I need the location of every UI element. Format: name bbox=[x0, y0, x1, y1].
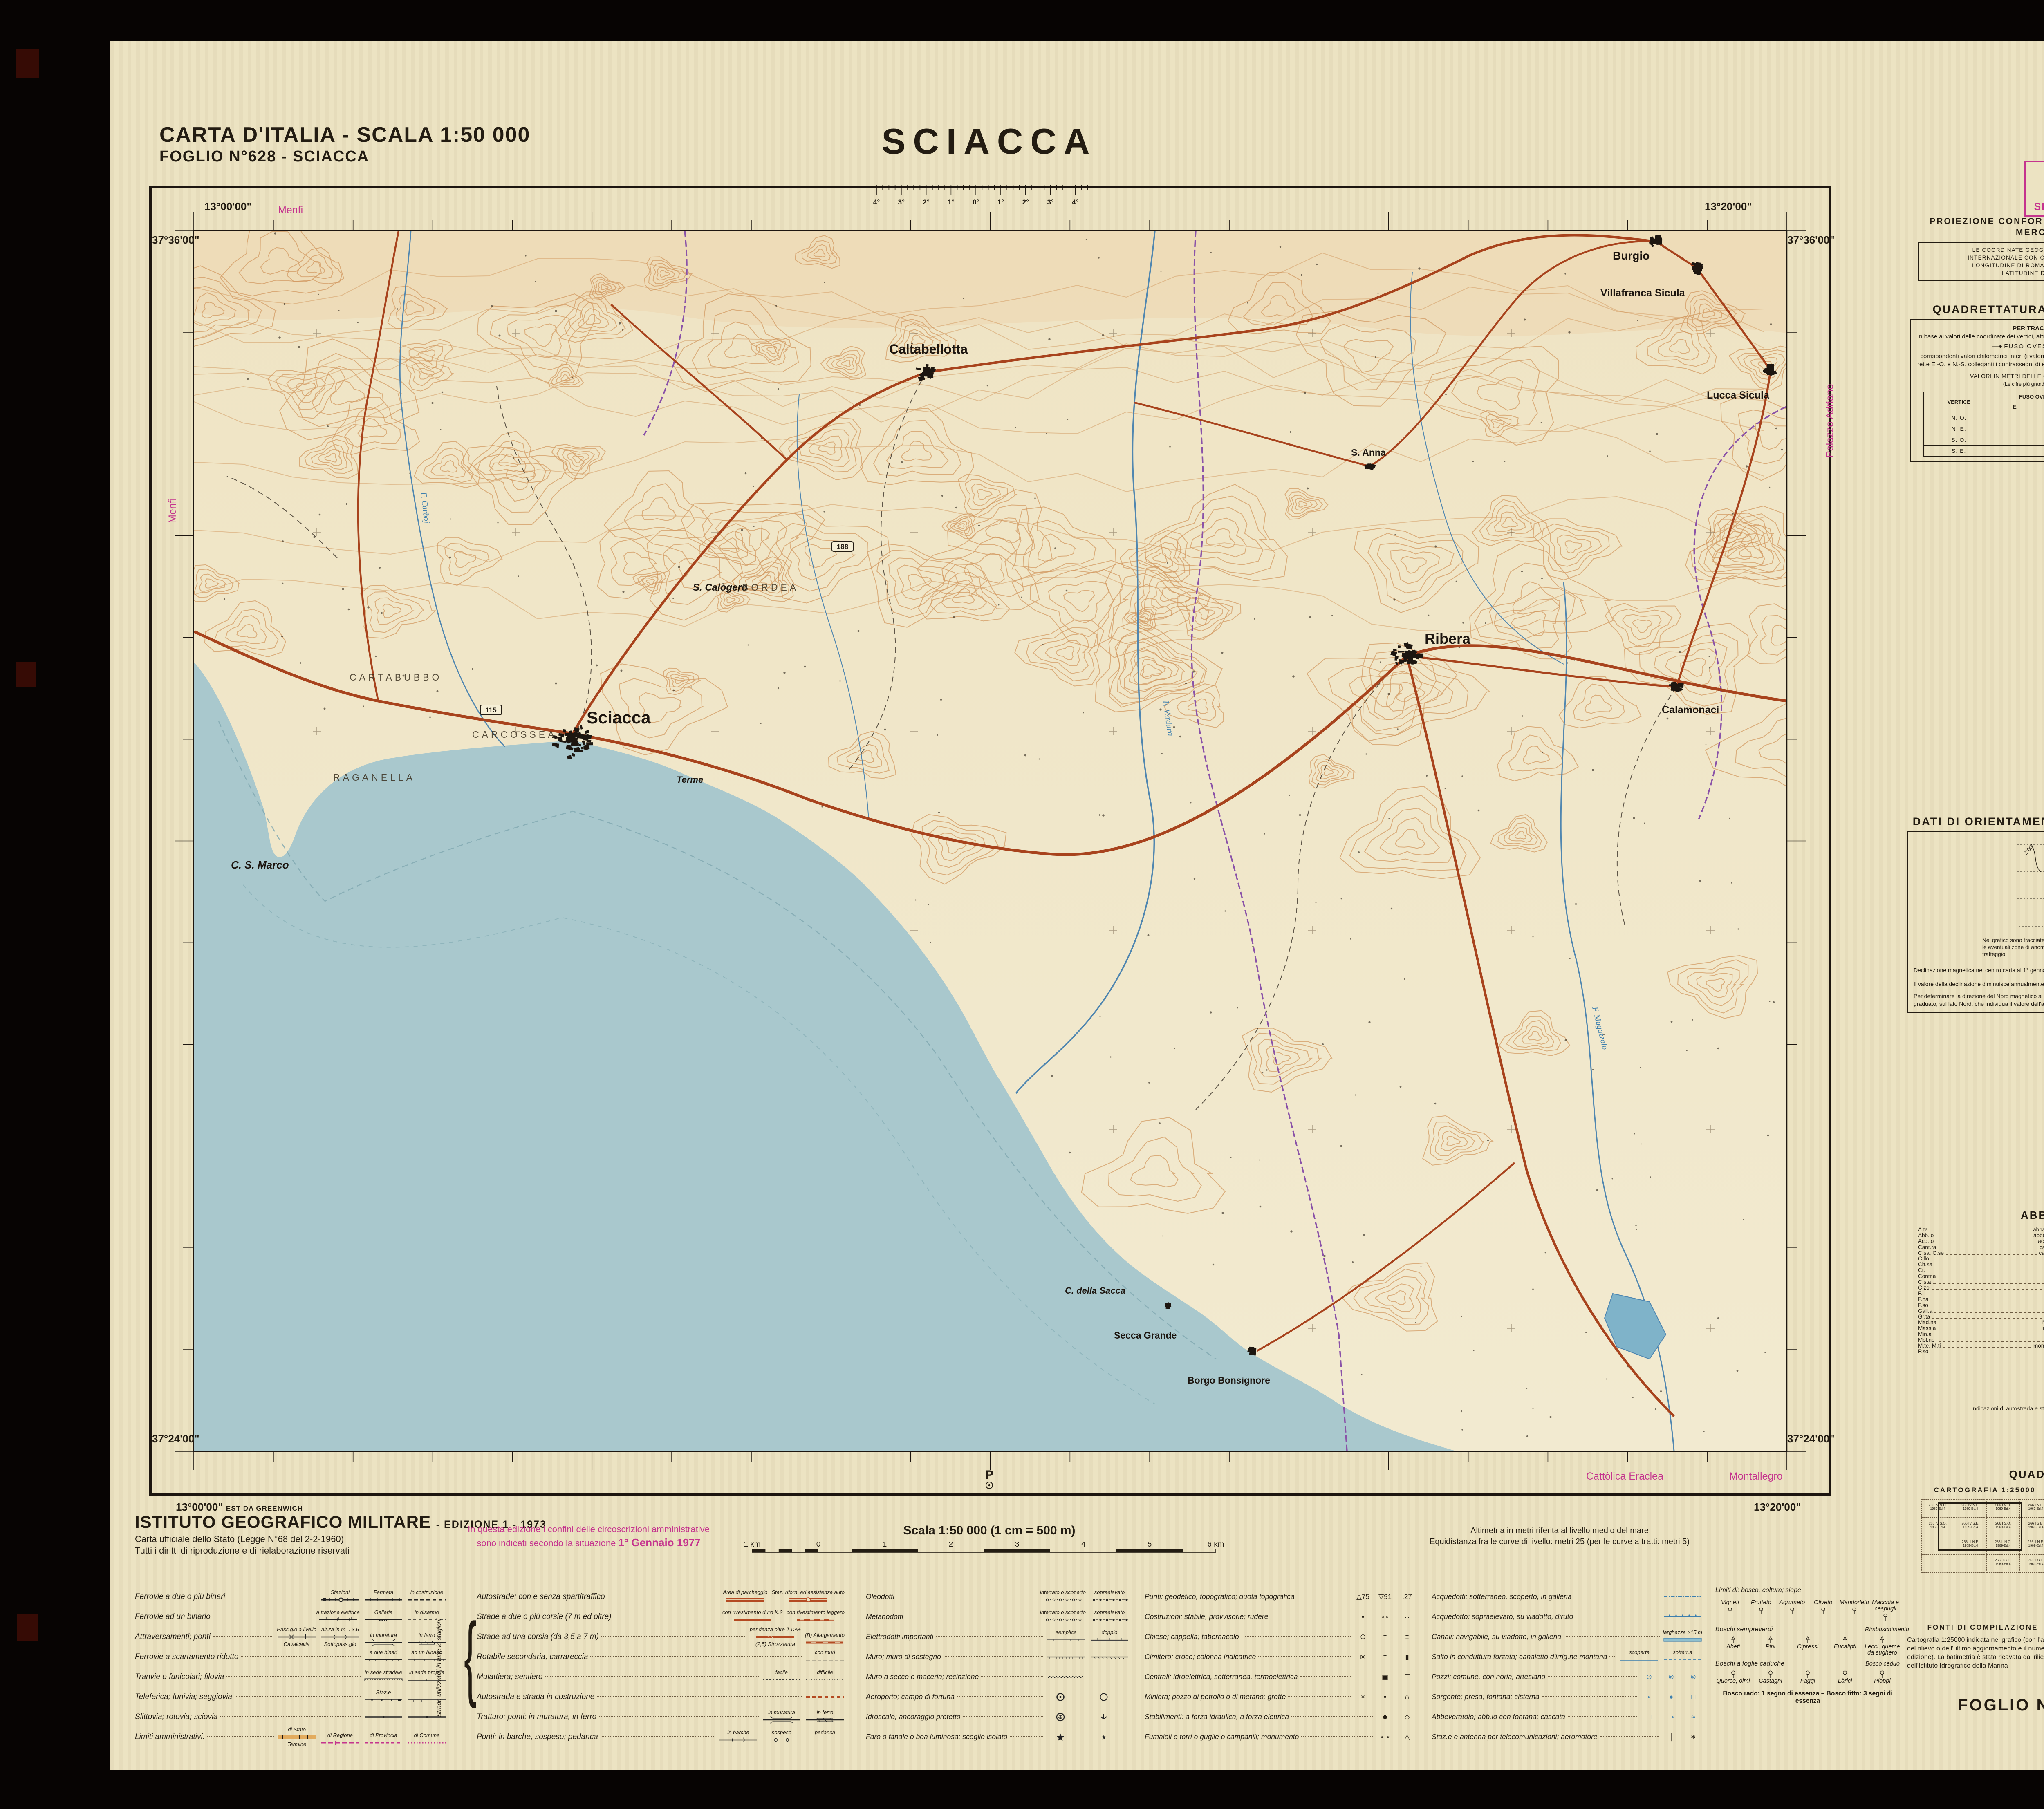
adjoining-sheet-left: Menfi bbox=[167, 498, 179, 523]
legend-symbol-icon bbox=[762, 1735, 801, 1744]
legend-symbol-icon bbox=[1663, 1612, 1702, 1621]
corner-nw-lat: 37°36'00" bbox=[152, 234, 199, 246]
quadrettatura-p3: VALORI IN METRI DELLE COORDINATE DEI VER… bbox=[1917, 372, 2044, 380]
veg-species: Cipressi bbox=[1790, 1635, 1825, 1656]
legend-symbol-icon bbox=[1047, 1672, 1086, 1681]
c25-cell: 266 I S.E.1969-Ed.4 bbox=[2019, 1518, 2044, 1536]
legend-symbol-slot: △ bbox=[1398, 1733, 1416, 1741]
legend-label: Ponti: in barche, sospeso; pedanca bbox=[477, 1733, 598, 1742]
legend-label: Sorgente; presa; fontana; cisterna bbox=[1432, 1693, 1540, 1701]
c25-title: CARTOGRAFIA 1:25000 bbox=[1905, 1486, 2044, 1494]
legend-symbol-slot: ⊠ bbox=[1354, 1653, 1372, 1661]
legend-symbol-icon bbox=[1663, 1635, 1702, 1644]
abbreviation-row: A.taabbandonata bbox=[1918, 1227, 2044, 1233]
col-n: N. bbox=[2036, 402, 2044, 412]
legend-row: Ponti: in barche, sospeso; pedanca in ba… bbox=[477, 1727, 845, 1747]
legend-symbol-icon bbox=[719, 1735, 758, 1744]
coordinates-note-line: LONGITUDINE DI ROMA (M. MARIO), DA GREEN… bbox=[1921, 262, 2044, 269]
tree-icon bbox=[1851, 1607, 1858, 1615]
legend-symbol-icon bbox=[1090, 1713, 1129, 1722]
legend-symbol-slot bbox=[1090, 1672, 1129, 1681]
legend-symbol-icon bbox=[805, 1655, 845, 1664]
legend-row: Ferrovie a scartamento ridotto a due bin… bbox=[135, 1647, 446, 1667]
legend-symbol-slot: scoperta bbox=[1620, 1650, 1659, 1664]
abbreviation-row: Ch.sachiesa bbox=[1918, 1262, 2044, 1267]
legend-symbol-icon bbox=[805, 1675, 845, 1684]
town-label: Caltabellotta bbox=[889, 342, 968, 356]
legend-row: Abbeveratoio; abb.io con fontana; cascat… bbox=[1432, 1707, 1702, 1727]
legend-label: Fumaioli o torri o guglie o campanili; m… bbox=[1145, 1733, 1299, 1741]
legend-label: Chiese; cappella; tabernacolo bbox=[1145, 1632, 1239, 1641]
legend-symbol-icon bbox=[364, 1675, 403, 1684]
legend-row: Idroscalo; ancoraggio protetto bbox=[866, 1707, 1129, 1727]
legend-symbol-slot: pedanca bbox=[805, 1730, 845, 1744]
legend-row: Oleodotti interrato o scoperto so bbox=[866, 1587, 1129, 1607]
diminution-line: Il valore della declinazione diminuisce … bbox=[1914, 977, 2044, 988]
legend-symbol-icon bbox=[1047, 1635, 1086, 1644]
legend-label: Rotabile secondaria, carrareccia bbox=[477, 1652, 588, 1661]
legend-symbol-slot bbox=[1047, 1672, 1086, 1681]
legend-symbol-slot: sotterr.a bbox=[1663, 1650, 1702, 1664]
legend-label: Attraversamenti; ponti bbox=[135, 1632, 211, 1641]
legend-label: Costruzioni: stabile, provvisorie; ruder… bbox=[1145, 1612, 1269, 1621]
legend-symbol-icon bbox=[364, 1638, 403, 1647]
legend-symbol-slot: □ bbox=[1684, 1693, 1702, 1701]
cape-label: C. della Sacca bbox=[1065, 1285, 1125, 1296]
c25-sheet-outline bbox=[1938, 1502, 2022, 1551]
veg-crop: Agrumeto bbox=[1777, 1600, 1807, 1621]
veg-species: Querce, olmi bbox=[1715, 1669, 1751, 1684]
legend-row: Autostrade: con e senza spartitraffico A… bbox=[477, 1587, 845, 1607]
legend-symbol-icon bbox=[364, 1713, 403, 1722]
legend-symbol-icon bbox=[364, 1615, 403, 1624]
projection-note: PROIEZIONE CONFORME UNIVERSALE TRASVERSA… bbox=[1913, 216, 2044, 238]
legend-symbol-icon bbox=[364, 1695, 403, 1704]
abbreviation-row: Mad.naMadonna bbox=[1918, 1320, 2044, 1325]
legend-symbol-slot: doppio bbox=[1090, 1630, 1129, 1644]
series-title: CARTA D'ITALIA - SCALA 1:50 000 bbox=[159, 123, 530, 147]
corner-ne-lat: 37°36'00" bbox=[1787, 234, 1835, 246]
legend-col-points: Punti: geodetico, topografico; quota top… bbox=[1145, 1587, 1416, 1747]
legend-row: Limiti amministrativi: di Stato Termine bbox=[135, 1727, 446, 1747]
legend-symbol-slot: ∘ ∘ bbox=[1376, 1733, 1394, 1741]
bosco-note: Bosco rado: 1 segno di essenza – Bosco f… bbox=[1715, 1690, 1900, 1705]
legend-symbol-slot: facile bbox=[762, 1670, 801, 1684]
c25-cell: 266 II N.E.1969-Ed.4 bbox=[2019, 1536, 2044, 1554]
legend-symbol-slot: × bbox=[1354, 1693, 1372, 1701]
legend-row: Miniera; pozzo di petrolio o di metano; … bbox=[1145, 1687, 1416, 1707]
legend-symbol-slot bbox=[1090, 1693, 1129, 1702]
legend-symbol-icon bbox=[364, 1595, 403, 1604]
legend-symbol-slot: ≈ bbox=[1684, 1713, 1702, 1721]
town-label: Calamonaci bbox=[1662, 704, 1719, 716]
tree-icon bbox=[1879, 1670, 1885, 1678]
svg-text:3: 3 bbox=[1015, 1542, 1020, 1549]
legend-symbol-icon bbox=[805, 1693, 845, 1702]
legend-row: Slittovia; rotovia; sciovia bbox=[135, 1707, 446, 1727]
map-title: SCIACCA bbox=[809, 121, 1169, 162]
roads-brace: { bbox=[464, 1583, 477, 1730]
legend-label: Salto in conduttura forzata; canaletto d… bbox=[1432, 1652, 1607, 1661]
legend-row: Teleferica; funivia; seggiovia Staz.e bbox=[135, 1687, 446, 1707]
veg-crop: Oliveto bbox=[1809, 1600, 1838, 1621]
legend-symbol-slot: ▣ bbox=[1376, 1673, 1394, 1681]
legend-row: Strade a due o più corsie (7 m ed oltre)… bbox=[477, 1607, 845, 1627]
legend-symbol-slot: pendenza oltre il 12% (2,5) Strozzatura bbox=[750, 1627, 801, 1647]
abbreviation-row: Contr.acontrada bbox=[1918, 1274, 2044, 1279]
legend-symbol-slot bbox=[805, 1693, 845, 1702]
legend-row: Elettrodotti importanti semplice bbox=[866, 1627, 1129, 1647]
legend-symbol-icon bbox=[320, 1595, 360, 1604]
legend-symbol-slot bbox=[364, 1713, 403, 1722]
legend-symbol-icon bbox=[1047, 1733, 1086, 1742]
conifer-icon bbox=[1767, 1636, 1774, 1644]
legend-symbol-icon bbox=[733, 1615, 772, 1624]
legend-label: Oleodotti bbox=[866, 1592, 894, 1601]
legend-symbol-slot: con rivestimento duro K.2 bbox=[722, 1610, 782, 1624]
legend-symbol-icon bbox=[1090, 1652, 1129, 1661]
legend-symbol-slot: sospeso bbox=[762, 1730, 801, 1744]
legend-row: Mulattiera; sentiero facile diffi bbox=[477, 1667, 845, 1687]
legend-row: Punti: geodetico, topografico; quota top… bbox=[1145, 1587, 1416, 1607]
legend-symbol-icon bbox=[318, 1615, 358, 1624]
legend-symbol-icon bbox=[364, 1738, 403, 1747]
legend-symbol-slot: ⊚ bbox=[1684, 1673, 1702, 1681]
legend-label: Ferrovie a due o più binari bbox=[135, 1592, 225, 1601]
sheet-number: FOGLIO N°628 - SCIACCA bbox=[159, 148, 530, 166]
sw-lon-value: 13°00'00" bbox=[176, 1501, 223, 1513]
corner-nw-lon: 13°00'00" bbox=[204, 200, 252, 213]
legend-symbol-slot: Area di parcheggio bbox=[723, 1590, 767, 1604]
declination-diagram: 2°00' 1°55' 1°50' 1°45' 1°45' bbox=[2009, 838, 2044, 934]
conifer-icon bbox=[1730, 1636, 1737, 1644]
legend-label: Metanodotti bbox=[866, 1612, 903, 1621]
legend-symbol-slot bbox=[1047, 1713, 1086, 1722]
legend-symbol-slot: Fermata bbox=[364, 1590, 403, 1604]
legend-row: Autostrada e strada in costruzione bbox=[477, 1687, 845, 1707]
quadrettatura-p1: In base ai valori delle coordinate dei v… bbox=[1917, 333, 2044, 341]
legend-label: Aeroporto; campo di fortuna bbox=[866, 1693, 955, 1701]
veg-species: Làrici bbox=[1827, 1669, 1863, 1684]
veg-deciduous: Querce, olmi Castagni Faggi Làrici bbox=[1715, 1669, 1900, 1684]
tree-icon bbox=[1767, 1670, 1774, 1678]
legend-symbol-slot: ▪ bbox=[1354, 1613, 1372, 1621]
isogon-label: 2°00' bbox=[2022, 843, 2035, 856]
abbreviation-row: F.nafontana bbox=[1918, 1296, 2044, 1302]
abbreviation-row: C.sa, C.secasa, case bbox=[1918, 1250, 2044, 1256]
legend-label: Ferrovie a scartamento ridotto bbox=[135, 1652, 238, 1661]
veg-crop: Macchia e cespugli bbox=[1871, 1600, 1900, 1621]
town-label: S. Anna bbox=[1351, 447, 1386, 458]
legend-symbol-slot: ∴ bbox=[1398, 1613, 1416, 1621]
veg-evergreen-title: Boschi sempreverdi bbox=[1715, 1626, 1773, 1633]
coordinates-note-box: LE COORDINATE GEOGRAFICHE SONO RIFERITE … bbox=[1918, 242, 2044, 281]
vertice-name: S. O. bbox=[1924, 434, 1994, 446]
abbreviation-row: M.te, M.timonte, monti bbox=[1918, 1343, 2044, 1349]
legend-symbol-slot: ∩ bbox=[1398, 1693, 1416, 1701]
scan-artifact bbox=[16, 662, 36, 687]
tree-icon bbox=[1789, 1607, 1795, 1615]
quadrettatura-p4: (Le cifre più grandi indicano le decine … bbox=[1917, 380, 2044, 388]
legend-symbol-slot: con muri bbox=[805, 1650, 845, 1664]
area-label: BORDEA bbox=[742, 582, 799, 593]
abbreviation-row: Mass.amasseria bbox=[1918, 1325, 2044, 1331]
legend-row: Rotabile secondaria, carrareccia con mur… bbox=[477, 1647, 845, 1667]
legend-symbol-icon bbox=[762, 1675, 801, 1684]
legend-row: Chiese; cappella; tabernacolo ⊕ bbox=[1145, 1627, 1416, 1647]
legend-row: Acquedotti: sotterraneo, scoperto, in ga… bbox=[1432, 1587, 1702, 1607]
legend-symbol-slot: Staz.e bbox=[364, 1690, 403, 1704]
town-label: Borgo Bonsignore bbox=[1188, 1375, 1270, 1386]
legend-label: Tranvie o funicolari; filovia bbox=[135, 1672, 224, 1681]
fuso-ovest-icon: —● bbox=[1992, 343, 2002, 350]
veg-species: Abeti bbox=[1715, 1635, 1751, 1656]
legend-symbol-icon bbox=[796, 1615, 835, 1624]
veg-species: Eucalipti bbox=[1827, 1635, 1863, 1656]
legend-symbol-slot: † bbox=[1376, 1653, 1394, 1661]
legend-row: Muro; muro di sostegno bbox=[866, 1647, 1129, 1667]
area-label: CARTABUBBO bbox=[350, 672, 442, 683]
vertice-name: N. E. bbox=[1924, 423, 1994, 434]
legend-col-vegetation: Limiti di: bosco, coltura; siepe Vigneti… bbox=[1715, 1587, 1900, 1705]
col-vertice: VERTICE bbox=[1924, 392, 1994, 412]
p-reference-mark: P bbox=[981, 1470, 997, 1491]
legend-label: Tratturo; ponti: in muratura, in ferro bbox=[477, 1713, 596, 1722]
c25-cell bbox=[1921, 1554, 1954, 1573]
tree-icon bbox=[1882, 1613, 1889, 1621]
veg-crop: Frutteto bbox=[1746, 1600, 1776, 1621]
legend-symbol-slot: in ferro bbox=[805, 1710, 845, 1724]
roads-side-label: Strade utilizzabili in tutte le stagioni bbox=[436, 1590, 443, 1745]
legend-symbol-slot: ∗ bbox=[1684, 1733, 1702, 1741]
veg-rimboschimento: Rimboschimento bbox=[1865, 1627, 1900, 1633]
legend-symbol-slot: ▽91 bbox=[1376, 1593, 1394, 1601]
legend-symbol-slot: con rivestimento leggero bbox=[787, 1610, 845, 1624]
legend-label: Autostrada e strada in costruzione bbox=[477, 1693, 594, 1702]
fonti-title: FONTI DI COMPILAZIONE bbox=[1901, 1623, 2044, 1632]
altimetria-note: Altimetria in metri riferita al livello … bbox=[1288, 1525, 1831, 1547]
fuso-symbols: —● FUSO OVEST —< FUSO EST bbox=[1917, 343, 2044, 351]
tree-icon bbox=[1842, 1670, 1848, 1678]
legend-symbol-slot: sopraelevato bbox=[1090, 1610, 1129, 1624]
legend-symbol-slot bbox=[1663, 1612, 1702, 1621]
legend-symbol-icon bbox=[1047, 1693, 1086, 1702]
legend-row: Acquedotto: sopraelevato, su viadotto, d… bbox=[1432, 1607, 1702, 1627]
svg-text:4: 4 bbox=[1081, 1542, 1086, 1549]
svg-text:5: 5 bbox=[1148, 1542, 1152, 1549]
legend-symbol-slot: ▮ bbox=[1398, 1653, 1416, 1661]
legend-symbol-slot: (B) Allargamento bbox=[805, 1632, 845, 1647]
coordinates-note-line: LE COORDINATE GEOGRAFICHE SONO RIFERITE … bbox=[1921, 246, 2044, 254]
legend-symbol-slot: ┼ bbox=[1662, 1733, 1680, 1741]
legend-symbol-slot: alt.za in m ⊥3,6 Sottopass.gio bbox=[320, 1627, 360, 1647]
veg-evergreen: Abeti Pini Cipressi Eucalipti bbox=[1715, 1635, 1900, 1656]
legend-symbol-icon bbox=[1663, 1655, 1702, 1664]
legend-symbol-slot: Pass.gio a livello Cavalcavia bbox=[277, 1627, 316, 1647]
legend-symbol-slot: ⊤ bbox=[1398, 1673, 1416, 1681]
legend-label: Acquedotti: sotterraneo, scoperto, in ga… bbox=[1432, 1592, 1571, 1601]
legend-label: Elettrodotti importanti bbox=[866, 1632, 933, 1641]
veg-species: Pioppi bbox=[1865, 1669, 1900, 1684]
quadrettatura-subtitle: PER TRACCIARE LA QUADRETTATURA: bbox=[1917, 325, 2044, 333]
legend-label: Punti: geodetico, topografico; quota top… bbox=[1145, 1592, 1295, 1601]
coordinates-note-line: LATITUDINE DI ROMA (M. MARIO): 41°55'31"… bbox=[1921, 269, 2044, 277]
legend-symbol-icon bbox=[1090, 1733, 1129, 1742]
abbreviation-row: F.fiume bbox=[1918, 1291, 2044, 1296]
adjoining-sheet-bottom-1: Cattòlica Eraclea bbox=[1586, 1471, 1663, 1482]
legend-label: Staz.e e antenna per telecomunicazioni; … bbox=[1432, 1733, 1598, 1741]
corner-se-lon: 13°20'00" bbox=[1754, 1501, 1801, 1513]
quadri-title: QUADRI D'UNIONE bbox=[1901, 1468, 2044, 1481]
abbreviation-row: F.sofosso bbox=[1918, 1303, 2044, 1308]
abbreviation-row: Gr.tagrotta bbox=[1918, 1314, 2044, 1320]
vertice-name: S. E. bbox=[1924, 446, 1994, 457]
legend-label: Muro a secco o maceria; recinzione bbox=[866, 1672, 979, 1681]
legend-col-water: Acquedotti: sotterraneo, scoperto, in ga… bbox=[1432, 1587, 1702, 1747]
veg-species: Castagni bbox=[1753, 1669, 1788, 1684]
legend-symbol-icon bbox=[805, 1735, 845, 1744]
veg-species: Faggi bbox=[1790, 1669, 1825, 1684]
abbreviation-row: P.sopasso bbox=[1918, 1349, 2044, 1355]
c25-cell: 266 II S.O.1969-Ed.4 bbox=[1987, 1554, 2019, 1573]
legend-symbol-slot: ⊥ bbox=[1354, 1673, 1372, 1681]
tree-icon bbox=[1804, 1670, 1811, 1678]
legend-symbol-slot: interrato o scoperto bbox=[1040, 1610, 1086, 1624]
c25-cell bbox=[1954, 1554, 1987, 1573]
legend-label: Miniera; pozzo di petrolio o di metano; … bbox=[1145, 1693, 1286, 1701]
sigle-note: Indicazioni di autostrada e strada stata… bbox=[1913, 1405, 2044, 1412]
legend-symbol-icon bbox=[805, 1638, 844, 1647]
town-label: Lucca Sicula bbox=[1707, 390, 1770, 401]
legend-symbol-slot: di Regione bbox=[320, 1733, 360, 1747]
legend-symbol-icon bbox=[1663, 1592, 1702, 1601]
legend-symbol-slot: □∘ bbox=[1662, 1713, 1680, 1721]
area-label: RAGANELLA bbox=[333, 772, 415, 783]
vertice-row: N. O. 2343376 4163187 bbox=[1924, 412, 2044, 423]
veg-limits-label: Limiti di: bosco, coltura; siepe bbox=[1715, 1587, 1900, 1594]
legend-symbol-slot: Stazioni bbox=[320, 1590, 360, 1604]
p-label: P bbox=[985, 1468, 993, 1482]
legend-symbol-slot: di Provincia bbox=[364, 1733, 403, 1747]
legend-label: Slittovia; rotovia; sciovia bbox=[135, 1713, 218, 1722]
svg-text:1: 1 bbox=[883, 1542, 887, 1549]
legend-symbol-slot: † bbox=[1376, 1633, 1394, 1641]
legend-symbol-slot: ⊕ bbox=[1354, 1633, 1372, 1641]
legend-symbol-slot: a due binari bbox=[364, 1650, 403, 1664]
sheet-id-series: SERIE M 792 L. EDIZIONE 1-IGMI bbox=[2028, 201, 2044, 213]
legend-col-roads: Autostrade: con e senza spartitraffico A… bbox=[477, 1587, 845, 1747]
legend-symbol-slot: △75 bbox=[1354, 1593, 1372, 1601]
town-label: Ribera bbox=[1425, 630, 1471, 647]
abbreviazioni-title: ABBREVIAZIONI bbox=[1913, 1209, 2044, 1222]
legend-symbol-slot bbox=[1090, 1713, 1129, 1722]
tree-icon bbox=[1730, 1670, 1737, 1678]
legend-symbol-slot: ⊗ bbox=[1662, 1673, 1680, 1681]
adjoining-sheet-bottom-2: Montallegro bbox=[1729, 1471, 1783, 1482]
legend-label: Abbeveratoio; abb.io con fontana; cascat… bbox=[1432, 1713, 1565, 1721]
legend-symbol-slot: a trazione elettrica bbox=[316, 1610, 360, 1624]
legend-symbol-slot: in sede stradale bbox=[364, 1670, 403, 1684]
p-dot-icon bbox=[985, 1481, 993, 1489]
legend-symbol-slot: ▫ ▫ bbox=[1376, 1613, 1394, 1621]
declination-line: Declinazione magnetica nel centro carta … bbox=[1914, 963, 2044, 974]
legend-symbol-slot: ∘ bbox=[1640, 1693, 1658, 1701]
igm-name: ISTITUTO GEOGRAFICO MILITARE bbox=[135, 1512, 431, 1531]
tree-icon bbox=[1727, 1607, 1733, 1615]
legend-symbol-slot bbox=[1047, 1652, 1086, 1661]
col-e: E. bbox=[1994, 402, 2036, 412]
quadrettatura-p2: i corrispondenti valori chilometrici int… bbox=[1917, 352, 2044, 369]
tree-icon bbox=[1758, 1607, 1764, 1615]
conifer-icon bbox=[1804, 1636, 1811, 1644]
veg-species: Pini bbox=[1753, 1635, 1788, 1656]
abbreviation-row: C.zocozzo bbox=[1918, 1285, 2044, 1291]
mount-label: S. Calògero bbox=[693, 582, 747, 593]
legend-symbol-icon bbox=[1047, 1713, 1086, 1722]
vertici-table: VERTICE FUSO OVEST FUSO EST E. N. E. N. … bbox=[1923, 392, 2044, 457]
legend-label: Canali: navigabile, su viadotto, in gall… bbox=[1432, 1632, 1561, 1641]
legend-row: Salto in conduttura forzata; canaletto d… bbox=[1432, 1647, 1702, 1667]
town-label: Secca Grande bbox=[1114, 1330, 1177, 1341]
abbreviation-row: Gall.agalleria bbox=[1918, 1308, 2044, 1314]
corner-se-lat: 37°24'00" bbox=[1787, 1433, 1835, 1445]
legend-symbol-slot: .27 bbox=[1398, 1593, 1416, 1601]
legend-row: Ferrovie ad un binario a trazione elettr… bbox=[135, 1607, 446, 1627]
legend-symbol-slot: in muratura bbox=[762, 1710, 801, 1724]
legend-symbol-slot bbox=[1663, 1592, 1702, 1601]
svg-text:1 km: 1 km bbox=[744, 1542, 761, 1549]
legend-label: Muro; muro di sostegno bbox=[866, 1652, 941, 1661]
abbreviation-row: C.llocastello bbox=[1918, 1256, 2044, 1262]
veg-species: Lecci, querce da sughero bbox=[1865, 1635, 1900, 1656]
altimetria-line: Altimetria in metri riferita al livello … bbox=[1288, 1525, 1831, 1536]
cape-label: C. S. Marco bbox=[231, 859, 289, 871]
town-label: Burgio bbox=[1613, 249, 1650, 262]
vertice-row: S. O. 2342905 4140994 bbox=[1924, 434, 2044, 446]
legend-symbol-slot: interrato o scoperto bbox=[1040, 1590, 1086, 1604]
road-badge-label: 188 bbox=[837, 543, 848, 551]
altimetria-line: Equidistanza fra le curve di livello: me… bbox=[1288, 1536, 1831, 1547]
legend-label: Limiti amministrativi: bbox=[135, 1733, 205, 1742]
legend-row: Cimitero; croce; colonna indicatrice ⊠ bbox=[1145, 1647, 1416, 1667]
fonti-text: Cartografia 1:25000 indicata nel grafico… bbox=[1907, 1636, 2044, 1670]
legend-row: Costruzioni: stabile, provvisorie; ruder… bbox=[1145, 1607, 1416, 1627]
legend-symbol-slot bbox=[1090, 1652, 1129, 1661]
diagram-caption: Nel grafico sono tracciate le linee di e… bbox=[1982, 937, 2044, 958]
legend-symbol-icon bbox=[762, 1715, 801, 1724]
scan-artifact bbox=[16, 49, 39, 78]
abbreviazioni-left: A.taabbandonataAbb.ioabbeveratoioAcq.toa… bbox=[1918, 1227, 2044, 1355]
legend-symbol-icon bbox=[320, 1632, 360, 1641]
legend-col-lines: Oleodotti interrato o scoperto so bbox=[866, 1587, 1129, 1747]
legend-row: Sorgente; presa; fontana; cisterna ∘ bbox=[1432, 1687, 1702, 1707]
legend-row: Metanodotti interrato o scoperto bbox=[866, 1607, 1129, 1627]
legend-symbol-icon bbox=[1090, 1595, 1129, 1604]
legend-label: Teleferica; funivia; seggiovia bbox=[135, 1693, 232, 1702]
c25-cell: 266 I N.E.1969-Ed.4 bbox=[2019, 1499, 2044, 1518]
legend-symbol-slot: ◇ bbox=[1398, 1713, 1416, 1721]
abbreviation-row: Cr.croce bbox=[1918, 1267, 2044, 1273]
legend-label: Idroscalo; ancoraggio protetto bbox=[866, 1713, 961, 1721]
legend-label: Mulattiera; sentiero bbox=[477, 1672, 543, 1681]
adjoining-sheet-top: Menfi bbox=[278, 204, 303, 216]
legend-row: Tratturo; ponti: in muratura, in ferro i… bbox=[477, 1707, 845, 1727]
legend-row: Strade ad una corsia (da 3,5 a 7 m) pend… bbox=[477, 1627, 845, 1647]
legend-row: Ferrovie a due o più binari Stazioni bbox=[135, 1587, 446, 1607]
svg-text:2: 2 bbox=[949, 1542, 953, 1549]
vertice-row: S. E. 2372414 4140421 bbox=[1924, 446, 2044, 457]
edition-note-line1: In questa edizione i confini delle circo… bbox=[425, 1523, 752, 1536]
